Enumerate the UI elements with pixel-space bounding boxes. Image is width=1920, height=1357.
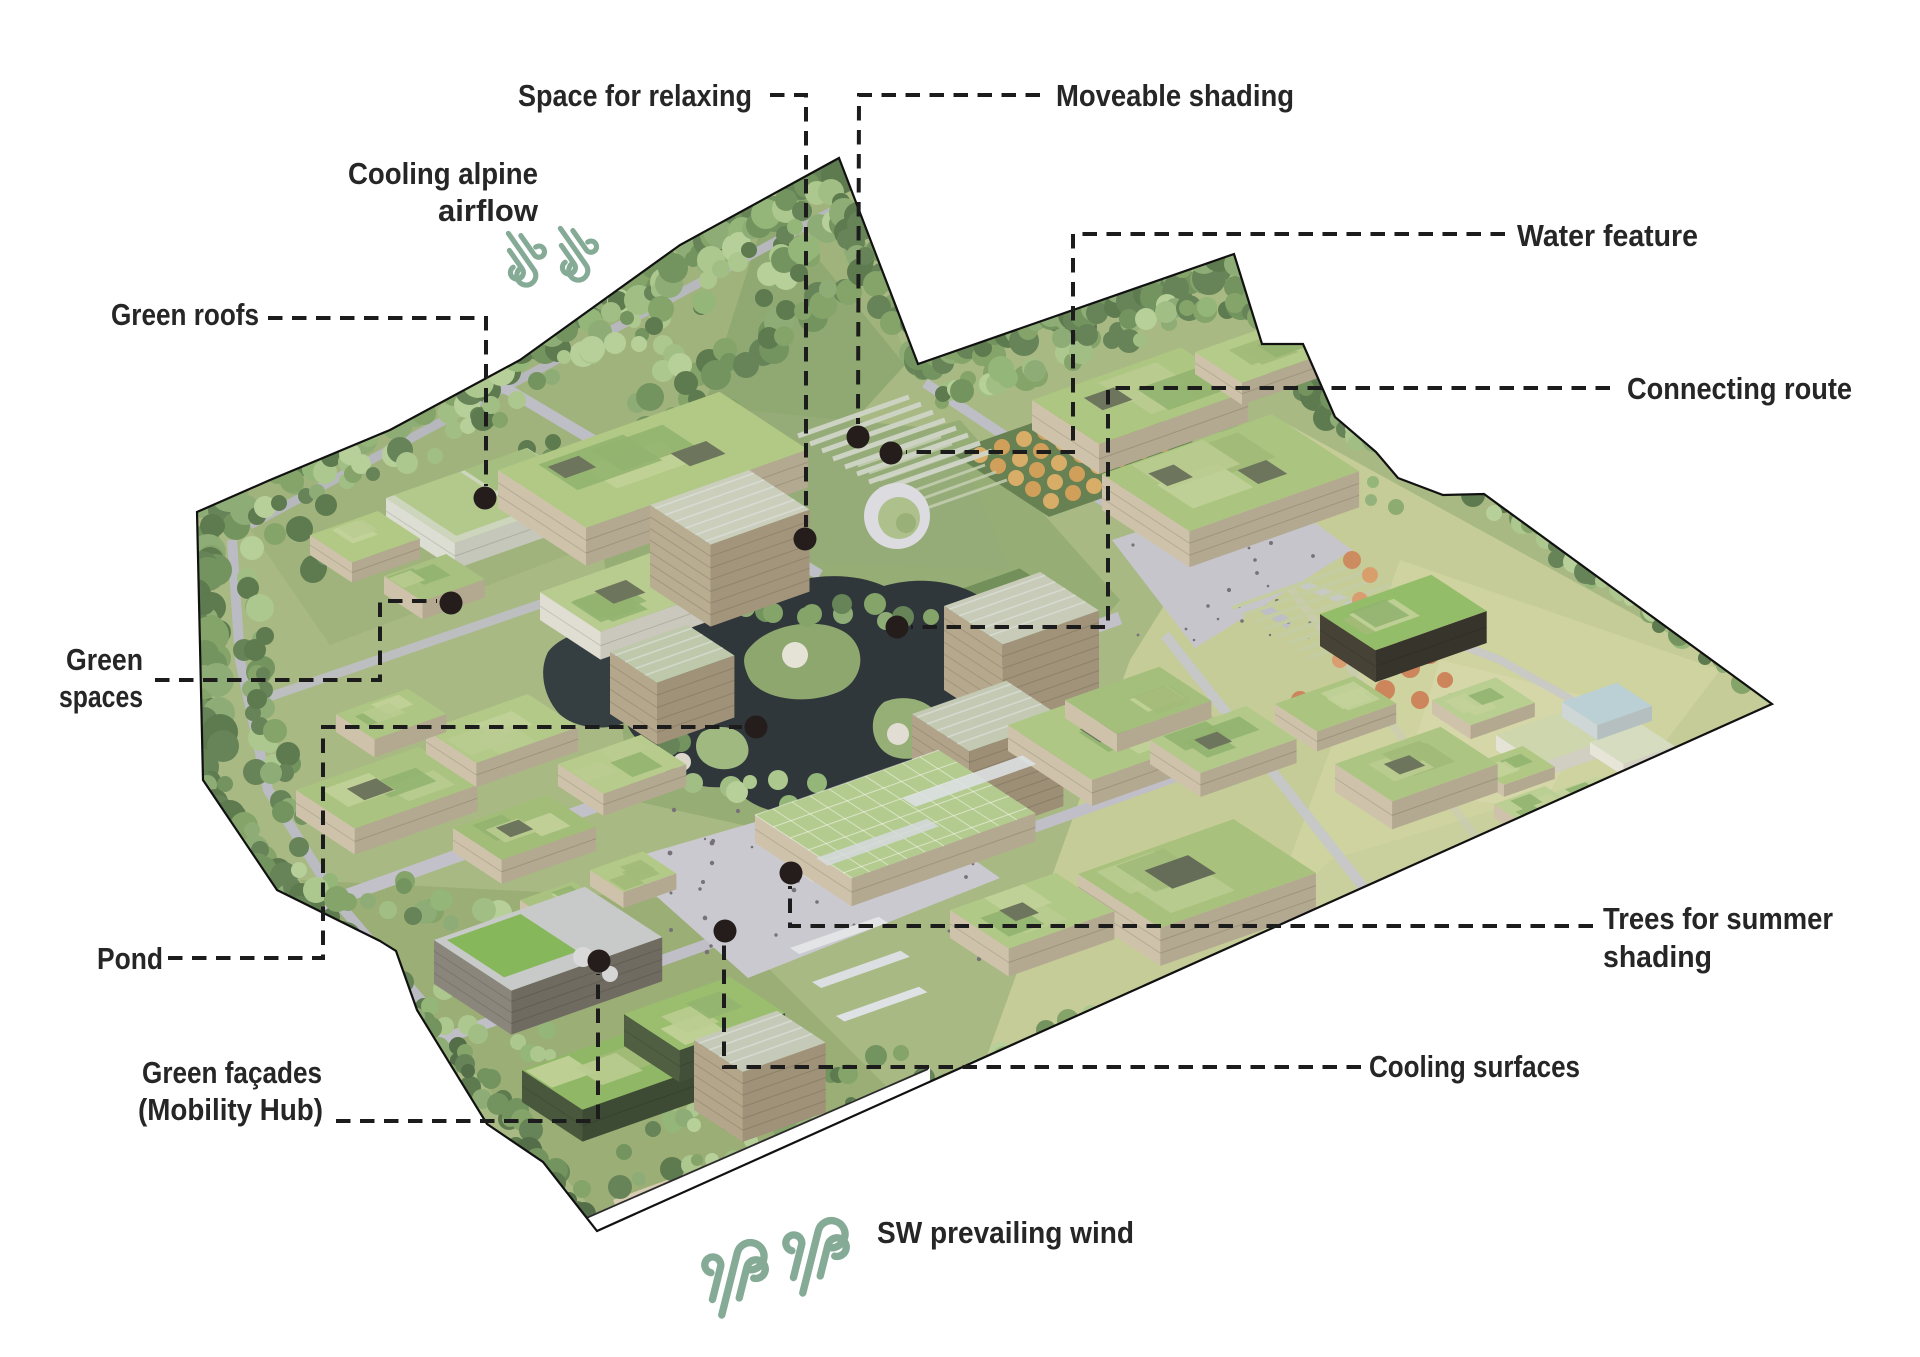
svg-text:shading: shading [1603,939,1712,974]
svg-text:Pond: Pond [97,941,163,976]
svg-text:Water feature: Water feature [1517,218,1698,253]
svg-text:Green façades: Green façades [142,1055,322,1090]
svg-text:Cooling alpine: Cooling alpine [348,156,538,191]
svg-text:Moveable shading: Moveable shading [1056,78,1294,113]
svg-text:(Mobility Hub): (Mobility Hub) [138,1092,323,1127]
svg-text:Trees for summer: Trees for summer [1603,901,1833,936]
svg-text:SW prevailing wind: SW prevailing wind [877,1215,1134,1250]
svg-text:Green roofs: Green roofs [111,297,259,332]
svg-text:Space for relaxing: Space for relaxing [518,78,752,113]
svg-text:spaces: spaces [59,679,143,714]
svg-text:Cooling surfaces: Cooling surfaces [1369,1049,1580,1084]
svg-text:Green: Green [66,642,143,677]
svg-text:airflow: airflow [438,193,539,228]
svg-text:Connecting route: Connecting route [1627,371,1852,406]
